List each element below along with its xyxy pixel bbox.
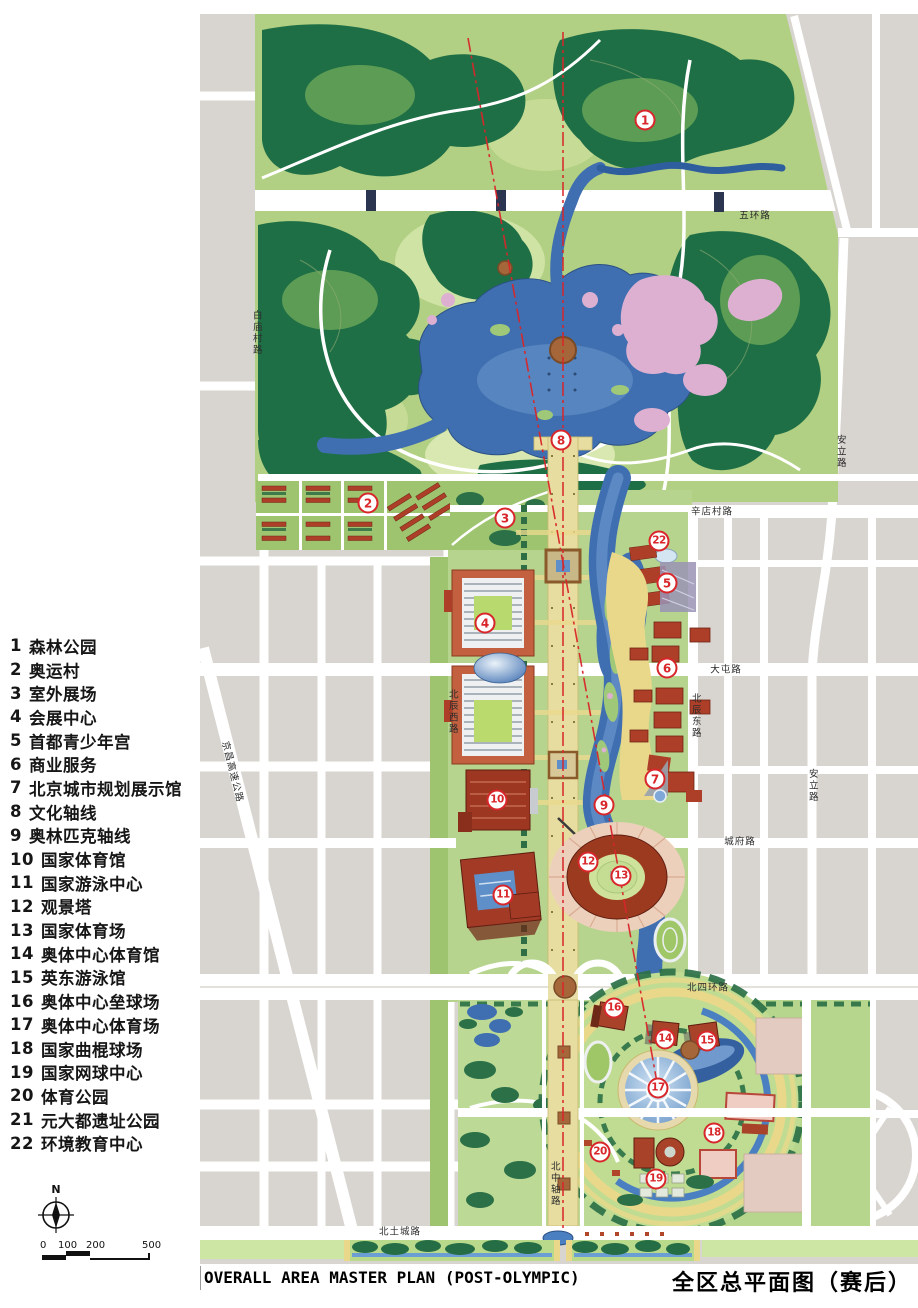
legend-item: 8 文化轴线	[10, 800, 205, 824]
road-label: 安立路	[807, 769, 817, 804]
legend-item: 2 奥运村	[10, 658, 205, 682]
legend-item: 7 北京城市规划展示馆	[10, 776, 205, 800]
map-marker-11: 11	[493, 885, 514, 906]
scale-tick: 100	[58, 1240, 77, 1251]
legend-item-number: 16	[10, 992, 34, 1011]
map-marker-1: 1	[635, 110, 656, 131]
legend-item-number: 8	[10, 802, 22, 821]
title-bar: OVERALL AREA MASTER PLAN (POST-OLYMPIC) …	[0, 1264, 918, 1298]
scale-segment	[90, 1258, 150, 1260]
legend-item: 9 奥林匹克轴线	[10, 824, 205, 848]
map-marker-2: 2	[358, 493, 379, 514]
legend-item-number: 22	[10, 1134, 34, 1153]
title-divider	[200, 1266, 201, 1290]
legend-item-number: 9	[10, 826, 22, 845]
map-marker-5: 5	[657, 573, 678, 594]
legend-item: 3 室外展场	[10, 681, 205, 705]
fifth-ring-road	[255, 190, 838, 211]
legend-item-label: 首都青少年宫	[29, 729, 131, 753]
road-label: 北辰西路	[447, 689, 457, 735]
legend-item-number: 17	[10, 1015, 34, 1034]
legend-item: 11 国家游泳中心	[10, 871, 205, 895]
road-label: 安立路	[835, 435, 845, 470]
legend-item: 19 国家网球中心	[10, 1060, 205, 1084]
legend-item-label: 元大都遗址公园	[41, 1108, 160, 1132]
road-label: 北辰东路	[690, 693, 700, 739]
legend-item-number: 7	[10, 778, 22, 797]
compass-north-label: N	[34, 1184, 78, 1195]
legend-item: 10 国家体育馆	[10, 847, 205, 871]
legend-item: 14 奥体中心体育馆	[10, 942, 205, 966]
legend-item-label: 奥林匹克轴线	[29, 823, 131, 847]
road-label: 北中轴路	[549, 1161, 559, 1207]
legend-item: 18 国家曲棍球场	[10, 1037, 205, 1061]
map-marker-16: 16	[604, 998, 625, 1019]
legend-item: 5 首都青少年宫	[10, 729, 205, 753]
map-marker-4: 4	[475, 613, 496, 634]
olympic-village	[256, 477, 456, 550]
legend-item: 22 环境教育中心	[10, 1131, 205, 1155]
legend-item-label: 观景塔	[41, 894, 92, 918]
egg-dome	[474, 653, 526, 683]
road-label: 白庙村路	[251, 310, 261, 356]
road-label: 城府路	[724, 837, 756, 847]
legend-item-label: 北京城市规划展示馆	[29, 776, 182, 800]
legend-item: 13 国家体育场	[10, 918, 205, 942]
development-block	[756, 1018, 810, 1074]
road-label: 大屯路	[710, 665, 742, 675]
legend-item-number: 12	[10, 897, 34, 916]
legend-item: 16 奥体中心垒球场	[10, 989, 205, 1013]
map-marker-19: 19	[646, 1169, 667, 1190]
legend-item-label: 英东游泳馆	[41, 965, 126, 989]
legend-item-number: 10	[10, 850, 34, 869]
map-marker-22: 22	[649, 531, 670, 552]
map-marker-17: 17	[648, 1078, 669, 1099]
road-label: 五环路	[739, 211, 771, 221]
scale-segment	[42, 1255, 66, 1260]
scale-segment	[66, 1251, 90, 1256]
legend-item: 6 商业服务	[10, 752, 205, 776]
legend-item-number: 15	[10, 968, 34, 987]
road-label: 北四环路	[687, 983, 729, 993]
title-chinese: 全区总平面图（赛后）	[672, 1265, 912, 1297]
map-marker-7: 7	[645, 769, 666, 790]
legend-item-number: 14	[10, 944, 34, 963]
map-marker-18: 18	[704, 1123, 725, 1144]
map-marker-12: 12	[578, 852, 599, 873]
development-block	[744, 1154, 806, 1212]
legend-item: 1 森林公园	[10, 634, 205, 658]
legend-item-number: 20	[10, 1086, 34, 1105]
legend-item-number: 11	[10, 873, 34, 892]
south-sports-complex	[458, 972, 870, 1233]
legend-item-label: 奥体中心体育场	[41, 1013, 160, 1037]
map-marker-3: 3	[495, 508, 516, 529]
scale-tick: 0	[40, 1240, 46, 1251]
legend-item-label: 国家体育场	[41, 918, 126, 942]
map-marker-15: 15	[697, 1031, 718, 1052]
legend-item: 12 观景塔	[10, 895, 205, 919]
legend-item-label: 奥体中心垒球场	[41, 989, 160, 1013]
legend-item-number: 3	[10, 684, 22, 703]
legend-item-label: 国家网球中心	[41, 1060, 143, 1084]
legend-item-label: 森林公园	[29, 634, 97, 658]
legend-item-number: 18	[10, 1039, 34, 1058]
legend-item-number: 2	[10, 660, 22, 679]
legend-item-label: 会展中心	[29, 705, 97, 729]
legend-item-number: 4	[10, 707, 22, 726]
compass: N	[34, 1184, 78, 1236]
map-marker-8: 8	[551, 430, 572, 451]
title-english: OVERALL AREA MASTER PLAN (POST-OLYMPIC)	[204, 1268, 580, 1287]
scale-tick: 500	[142, 1240, 161, 1251]
legend-item-number: 5	[10, 731, 22, 750]
road-label: 北土城路	[379, 1227, 421, 1237]
map-marker-6: 6	[657, 658, 678, 679]
scale-tick: 200	[86, 1240, 105, 1251]
legend-item-label: 环境教育中心	[41, 1131, 143, 1155]
legend-item: 20 体育公园	[10, 1084, 205, 1108]
map-marker-14: 14	[655, 1029, 676, 1050]
practice-track	[655, 919, 685, 961]
legend-item-number: 1	[10, 636, 22, 655]
map-marker-13: 13	[611, 866, 632, 887]
legend-item-number: 19	[10, 1063, 34, 1082]
legend-item: 17 奥体中心体育场	[10, 1013, 205, 1037]
legend-item-label: 室外展场	[29, 681, 97, 705]
map-marker-9: 9	[594, 795, 615, 816]
legend-item-label: 体育公园	[41, 1084, 109, 1108]
legend-item-label: 奥体中心体育馆	[41, 942, 160, 966]
legend-item: 15 英东游泳馆	[10, 966, 205, 990]
legend-item-label: 奥运村	[29, 658, 80, 682]
legend-item-label: 国家体育馆	[41, 847, 126, 871]
map-marker-20: 20	[590, 1142, 611, 1163]
road-label: 辛店村路	[691, 507, 733, 517]
legend-item-number: 6	[10, 755, 22, 774]
compass-rose-icon	[34, 1195, 78, 1235]
map-marker-10: 10	[487, 790, 508, 811]
legend-item: 21 元大都遗址公园	[10, 1108, 205, 1132]
legend-item-label: 商业服务	[29, 752, 97, 776]
legend-item-label: 国家曲棍球场	[41, 1037, 143, 1061]
legend-item-number: 13	[10, 921, 34, 940]
scale-bar: 0 100 200 500	[36, 1240, 186, 1266]
sphere-feature	[654, 790, 666, 802]
legend: 1 森林公园 2 奥运村 3 室外展场 4 会展中心 5 首都青少年宫 6 商业…	[10, 634, 205, 1155]
legend-item-number: 21	[10, 1110, 34, 1129]
legend-item-label: 国家游泳中心	[41, 871, 143, 895]
legend-item: 4 会展中心	[10, 705, 205, 729]
legend-item-label: 文化轴线	[29, 800, 97, 824]
scale-segment	[148, 1253, 150, 1260]
